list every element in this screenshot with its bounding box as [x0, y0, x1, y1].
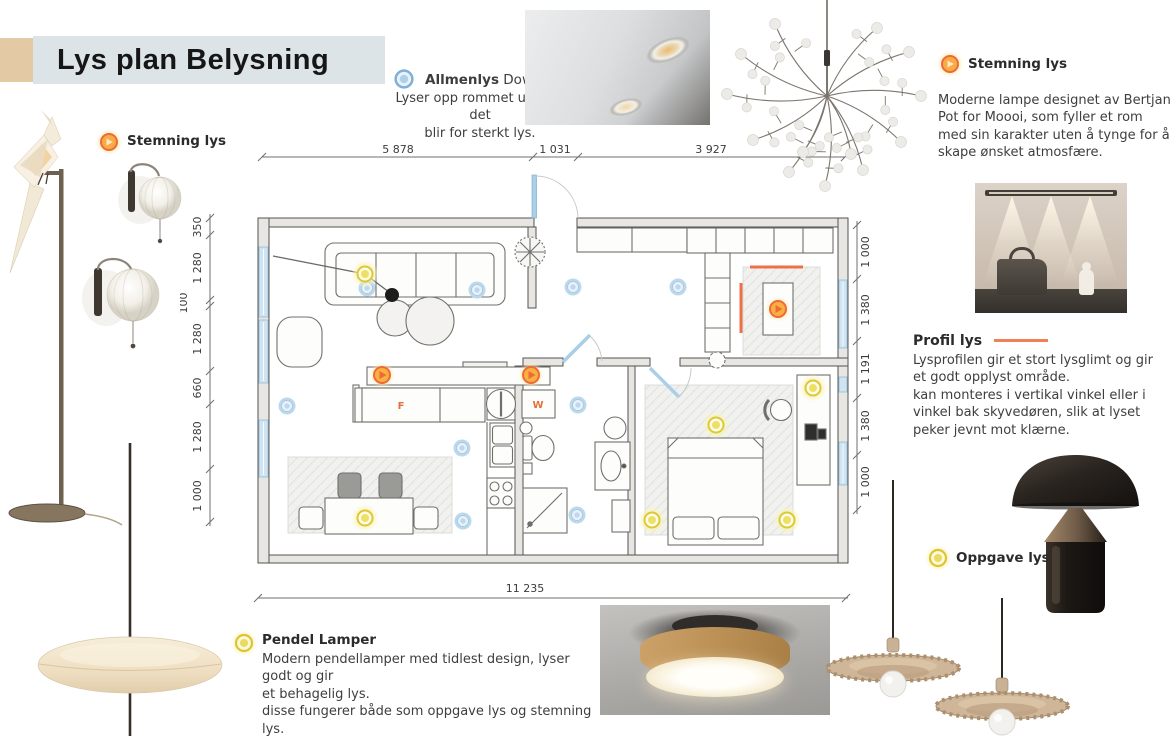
washer-label: W [532, 400, 543, 411]
svg-text:1 380: 1 380 [859, 294, 872, 326]
title-banner: Lys plan Belysning [33, 36, 385, 84]
svg-text:11 235: 11 235 [506, 582, 545, 595]
downlight-ring-icon [391, 66, 417, 92]
downlight-icon [569, 507, 586, 524]
svg-text:1 280: 1 280 [191, 323, 204, 355]
photo-corner-shadow [525, 10, 710, 125]
profil-desc-2: kan monteres i vertikal vinkel eller i v… [913, 387, 1168, 439]
downlight-icon [455, 513, 472, 530]
svg-text:1 380: 1 380 [859, 410, 872, 442]
oppgave-label: Oppgave lys [956, 550, 1050, 566]
svg-text:1 000: 1 000 [191, 480, 204, 512]
pendant-light-icon [773, 506, 801, 534]
svg-text:1 280: 1 280 [191, 252, 204, 284]
downlight-icon [279, 398, 296, 415]
entrance-door [532, 175, 537, 218]
profil-heading: Profil lys [913, 330, 1048, 349]
downlight-icon [565, 279, 582, 296]
figurine-body [1079, 269, 1094, 295]
downlight-icon [469, 282, 486, 299]
light-bar-glow [989, 192, 1113, 194]
accent-play-icon [518, 362, 544, 388]
pendel-desc-1: Modern pendellamper med tidlest design, … [262, 651, 592, 686]
downlight-icon [454, 440, 471, 457]
profil-desc: Lysprofilen gir et stort lysglimt og gir… [913, 352, 1168, 439]
svg-text:1 280: 1 280 [191, 421, 204, 453]
play-glow-icon [95, 128, 123, 156]
downlight-ceiling-photo [525, 10, 710, 125]
handbag-silhouette [997, 259, 1047, 295]
page-title: Lys plan Belysning [57, 44, 329, 77]
pendant-light-icon [799, 374, 827, 402]
profil-title: Profil lys [913, 333, 982, 349]
pendant-light-icon [351, 504, 379, 532]
svg-text:100: 100 [180, 293, 190, 314]
atollo-table-lamp-image [1008, 448, 1143, 620]
pendel-desc-3: disse fungerer både som oppgave lys og s… [262, 703, 592, 738]
pendel-desc: Modern pendellamper med tidlest design, … [262, 651, 592, 738]
lighting-plan-poster: { "title": "Lys plan Belysning", "sectio… [0, 0, 1172, 736]
svg-text:350: 350 [191, 217, 204, 238]
pendant-light-icon [702, 411, 730, 439]
pendel-icon [230, 629, 258, 657]
wall-sconce-large-image [72, 250, 184, 368]
svg-text:1 191: 1 191 [859, 353, 872, 385]
dot-glow-icon [230, 629, 258, 657]
svg-text:660: 660 [191, 378, 204, 399]
pleated-pendant-lamp-image [932, 598, 1072, 736]
fridge-label: F [398, 401, 405, 412]
svg-text:1 031: 1 031 [539, 143, 571, 156]
heracleum-chandelier-image [715, 0, 945, 212]
glowing-diffuser [646, 657, 784, 697]
downlight-icon [570, 397, 587, 414]
pendel-title: Pendel Lamper [262, 632, 376, 648]
accent-play-icon [369, 362, 395, 388]
pendel-desc-2: et behagelig lys. [262, 686, 592, 703]
stemning-right-desc: Moderne lampe designet av Bertjan Pot fo… [938, 92, 1171, 162]
accent-play-icon [765, 296, 791, 322]
stemning-right-label: Stemning lys [968, 56, 1067, 72]
svg-text:1 000: 1 000 [859, 236, 872, 268]
stemning-right-icon [936, 50, 964, 78]
ceiling-drum-lamp-photo [600, 605, 830, 715]
downlight-icon [670, 279, 687, 296]
play-glow-icon [936, 50, 964, 78]
allmenlys-icon [391, 66, 417, 92]
stemning-left-icon [95, 128, 123, 156]
pendant-light-icon [351, 260, 379, 288]
profil-desc-1: Lysprofilen gir et stort lysglimt og gir… [913, 352, 1168, 387]
allmenlys-title-bold: Allmenlys [425, 72, 499, 88]
pendant-light-icon [638, 506, 666, 534]
svg-text:5 878: 5 878 [382, 143, 414, 156]
profile-light-photo [975, 183, 1127, 313]
orange-dash [994, 339, 1048, 342]
